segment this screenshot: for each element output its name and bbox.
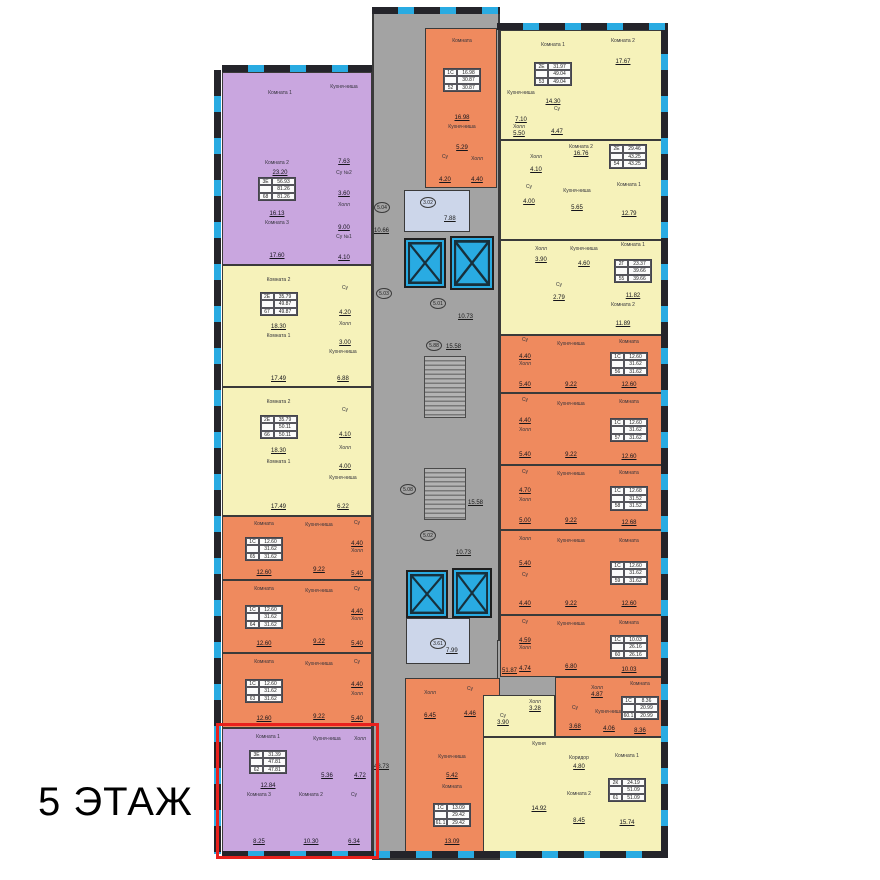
- room-name: Кухня-ниша: [557, 472, 584, 478]
- room-name: Комната 1: [268, 91, 292, 97]
- room-area: 4.60: [578, 261, 590, 267]
- empty-cell: [611, 426, 624, 434]
- apt-living-area: 12.60: [624, 353, 647, 361]
- apt-type: 2К: [609, 779, 622, 787]
- apartment-54[interactable]: 2Е29.4643.255443.25 Комната 216.76 Холл4…: [500, 140, 662, 240]
- apartment-61[interactable]: Кухня14.92 Коридор4.80 Комната 28.45 Ком…: [483, 737, 662, 852]
- apt-number: 65: [246, 553, 259, 561]
- room-name: Холл: [339, 322, 351, 328]
- apt-number: 53: [535, 78, 548, 86]
- room: Су3.90: [490, 714, 516, 726]
- room-name: Холл: [519, 362, 531, 368]
- apartment-59[interactable]: Холл5.40 Су4.40 Кухня-ниша9.22 Комната 1…: [500, 530, 662, 615]
- room-name: Холл: [424, 691, 436, 697]
- empty-cell: [611, 569, 624, 577]
- apt-number: 66: [261, 431, 274, 439]
- room-area: 12.60: [621, 382, 636, 388]
- room-area: 6.45: [424, 713, 436, 719]
- room: Кухня-ниша9.22: [547, 342, 595, 388]
- room: Комната 1С12.6031.625731.62 12.60: [599, 400, 659, 460]
- vestibule-upper: [404, 190, 470, 232]
- room-name: Комната 2: [267, 400, 291, 406]
- room-name: Комната: [254, 522, 274, 528]
- room-area: 3.90: [535, 257, 547, 263]
- room: Су3.68: [562, 706, 588, 730]
- apartment-56[interactable]: Су4.40 Холл5.40 Кухня-ниша9.22 Комната 1…: [500, 335, 662, 393]
- room-name: Комната: [254, 587, 274, 593]
- room-area: 5.42: [446, 773, 458, 779]
- room: Холл5.40: [511, 362, 539, 388]
- room-area: 9.22: [313, 639, 325, 645]
- room-area: 3.90: [497, 720, 509, 726]
- empty-cell: [622, 704, 635, 712]
- room-area: 18.30: [271, 324, 286, 330]
- apartment-55[interactable]: Холл3.90 Кухня-ниша4.60 Комната 1 2Г23.3…: [500, 240, 662, 335]
- apt-number: 59: [611, 577, 624, 585]
- room: Комната 112.79: [601, 183, 657, 217]
- room-name: Холл: [535, 247, 547, 253]
- room-name: Су: [467, 687, 473, 693]
- empty-cell: [246, 687, 259, 695]
- corridor-area-label: 7.88: [444, 216, 456, 222]
- floor-plan-page: { "floor_label": "5 ЭТАЖ", "colors": { "…: [0, 0, 880, 880]
- room-area: 11.82: [626, 293, 641, 299]
- room: Комната 1С12.6031.626531.62 12.60: [235, 522, 293, 576]
- room-name: Су: [342, 286, 348, 292]
- apartment-63[interactable]: Комната 1С12.6031.626331.62 12.60 Кухня-…: [222, 653, 372, 728]
- room-area: 4.70: [519, 488, 531, 494]
- apt-total-area: 26.16: [624, 651, 647, 659]
- room-name: Комната 1: [267, 460, 291, 466]
- apt-total-area: 29.42: [447, 811, 470, 819]
- room-area: 2.79: [553, 295, 565, 301]
- room-name: Кухня-ниша: [595, 710, 622, 716]
- apt-total-area: 43.25: [623, 160, 646, 168]
- apt-living-area: 23.37: [628, 260, 651, 268]
- room-name: Кухня: [532, 742, 545, 748]
- room: Холл6.45: [414, 691, 446, 719]
- room: Комната 1С16.9830.875230.87 16.98: [434, 39, 490, 121]
- apt-total-area: 29.42: [447, 819, 470, 827]
- room-area: 14.30: [545, 99, 560, 105]
- apartment-68[interactable]: Комната 123.20 Кухня-ниша7.63 Су №23.60 …: [222, 72, 372, 265]
- room-area: 15.74: [619, 820, 634, 826]
- stairs-icon: [424, 468, 466, 520]
- apt-living-area: 10.03: [624, 636, 647, 644]
- apt-number: 57: [611, 434, 624, 442]
- apartment-info-table: 1С8.3620.9960.120.99: [621, 696, 659, 721]
- apt-living-area: 12.60: [259, 606, 282, 614]
- room-area: 9.22: [565, 452, 577, 458]
- apt-type: 2Е: [535, 63, 548, 71]
- room-area: 4.00: [339, 464, 351, 470]
- apartment-info-table: 2Е31.9749.045349.04: [534, 62, 572, 87]
- room: Холл3.90: [527, 247, 555, 263]
- room-area: 12.60: [256, 641, 271, 647]
- apt-living-area: 12.60: [259, 538, 282, 546]
- apartment-52[interactable]: Комната 1С16.9830.875230.87 16.98 Кухня-…: [425, 28, 497, 188]
- apartment-info-table: 1С12.6831.525831.52: [610, 486, 648, 511]
- room-name: Су: [522, 470, 528, 476]
- apt-total-area: 31.62: [624, 360, 647, 368]
- room: Холл3.28: [520, 700, 550, 712]
- room-area: 4.06: [603, 726, 615, 732]
- room-area: 5.40: [351, 716, 363, 722]
- room: Су №14.10: [323, 235, 365, 261]
- corridor-area-label: 10.73: [458, 314, 473, 320]
- apt-total-area: 31.62: [624, 368, 647, 376]
- apt-type: 1С: [434, 804, 447, 812]
- room-name: Су: [522, 338, 528, 344]
- empty-cell: [246, 613, 259, 621]
- exterior-wall-windows: [372, 7, 500, 14]
- room-name: Холл: [351, 549, 363, 555]
- room-name: Кухня-ниша: [305, 662, 332, 668]
- room-area: 18.30: [271, 448, 286, 454]
- room-area: 6.22: [337, 504, 349, 510]
- apt-type: 2Е: [610, 145, 623, 153]
- room-area: 9.22: [313, 567, 325, 573]
- empty-cell: [259, 185, 272, 193]
- room-name: Су: [522, 398, 528, 404]
- room: Комната 1С12.6031.626331.62 12.60: [235, 660, 293, 722]
- room-name: Комната 2: [265, 161, 289, 167]
- room-area: 12.79: [621, 211, 636, 217]
- room: Холл4.87: [582, 686, 612, 698]
- room: Комната 2 2Е35.7949.876749.87 18.30: [241, 278, 316, 330]
- apartment-60-1[interactable]: Холл4.87 Су3.68 Кухня-ниша4.06 Комната 1…: [555, 677, 662, 737]
- room-area: 3.00: [339, 340, 351, 346]
- apt-number: 54: [610, 160, 623, 168]
- apt-total-area: 51.09: [622, 794, 645, 802]
- apartment-60[interactable]: Су4.59 Холл4.74 Кухня-ниша6.80 Комната 1…: [500, 615, 662, 677]
- apartment-info-table: 1С13.0929.4261.129.42: [433, 803, 471, 828]
- apt-total-area: 31.62: [259, 545, 282, 553]
- room: Холл4.40: [462, 157, 492, 183]
- room: Кухня-ниша7.63: [321, 85, 367, 165]
- room-name: Холл: [339, 446, 351, 452]
- room-area: 17.49: [271, 504, 286, 510]
- apt-living-area: 29.46: [623, 145, 646, 153]
- room: Су4.40: [511, 398, 539, 424]
- apartment-info-table: 2Е35.7950.116650.11: [260, 415, 298, 440]
- apartment-info-table: 2Е35.7949.876749.87: [260, 292, 298, 317]
- apt-total-area: 30.87: [457, 84, 480, 92]
- apt-number: 61: [609, 794, 622, 802]
- room: Су4.20: [325, 286, 365, 316]
- room-name: Холл: [519, 498, 531, 504]
- apt-living-area: 12.60: [624, 419, 647, 427]
- room-name: Холл: [530, 155, 542, 161]
- room-name: Комната 2: [267, 278, 291, 284]
- room-name: Комната 2: [611, 303, 635, 309]
- area-marker: 5.88: [426, 340, 442, 351]
- room-name: Су: [354, 521, 360, 527]
- room: Комната 317.60: [241, 221, 313, 259]
- room-name: Су: [354, 587, 360, 593]
- apt-total-area: 49.04: [548, 70, 571, 78]
- area-marker: 5.03: [376, 288, 392, 299]
- room: Комната 2 3Е56.9381.266881.26 16.13: [241, 161, 313, 217]
- apt-total-area: 31.52: [624, 502, 647, 510]
- apt-type: 1С: [246, 538, 259, 546]
- room: Кухня-ниша5.65: [553, 189, 601, 211]
- room-name: Кухня-ниша: [557, 539, 584, 545]
- apt-total-area: 20.99: [635, 712, 658, 720]
- apartment-info-table: 1С12.6031.625731.62: [610, 418, 648, 443]
- room: Комната 1С12.6031.625631.62 12.60: [599, 340, 659, 388]
- apt-total-area: 31.62: [624, 569, 647, 577]
- apt-living-area: 31.97: [548, 63, 571, 71]
- room-name: Комната: [619, 340, 639, 346]
- apartment-65[interactable]: Комната 1С12.6031.626531.62 12.60 Кухня-…: [222, 516, 372, 580]
- apt-total-area: 49.87: [274, 308, 297, 316]
- room-name: Кухня-ниша: [563, 189, 590, 195]
- room-name: Холл: [471, 157, 483, 163]
- room-name: Су: [556, 283, 562, 289]
- apt-total-area: 31.62: [624, 434, 647, 442]
- apt-living-area: 12.60: [259, 680, 282, 688]
- room: Су4.47: [543, 107, 571, 135]
- empty-cell: [610, 153, 623, 161]
- apt-type: 1С: [246, 680, 259, 688]
- apt-total-area: 43.25: [623, 153, 646, 161]
- apt-total-area: 31.62: [259, 621, 282, 629]
- room-area: 17.60: [269, 253, 284, 259]
- apt-total-area: 20.99: [635, 704, 658, 712]
- room: Холл9.00: [323, 203, 365, 231]
- room-name: Су: [522, 573, 528, 579]
- room: Кухня-ниша7.10: [503, 91, 539, 123]
- room-area: 9.22: [565, 518, 577, 524]
- room-name: Комната 1: [541, 43, 565, 49]
- room-area: 4.40: [519, 354, 531, 360]
- apartment-info-table: 1С12.6031.626531.62: [245, 537, 283, 562]
- corridor-area-label: 15.58: [446, 344, 461, 350]
- room: Холл5.50: [505, 125, 533, 137]
- room-name: Кухня-ниша: [557, 342, 584, 348]
- room-area: 6.88: [337, 376, 349, 382]
- apartment-61[interactable]: Холл3.28 Су3.90: [483, 695, 555, 737]
- room-area: 4.00: [523, 199, 535, 205]
- apt-total-area: 49.87: [274, 300, 297, 308]
- corridor-area-label: 51.87: [502, 668, 517, 674]
- room-name: Кухня-ниша: [305, 589, 332, 595]
- room: Комната 1С8.3620.9960.120.99 8.36: [620, 682, 660, 734]
- room-name: Су: [554, 107, 560, 113]
- room-name: Холл: [519, 428, 531, 434]
- apartment-57[interactable]: Су4.40 Холл5.40 Кухня-ниша9.22 Комната 1…: [500, 393, 662, 465]
- room: Кухня-ниша6.88: [319, 350, 367, 382]
- room-name: Комната: [452, 39, 472, 45]
- room-area: 5.00: [519, 518, 531, 524]
- room: Су4.70: [511, 470, 539, 494]
- area-marker: 3.61: [430, 638, 446, 649]
- room: Су №23.60: [323, 171, 365, 197]
- room: Су4.10: [325, 408, 365, 438]
- apartment-info-table: 2К24.1951.096151.09: [608, 778, 646, 803]
- apt-number: 68: [259, 193, 272, 201]
- apartment-67[interactable]: Комната 2 2Е35.7949.876749.87 18.30 Су4.…: [222, 265, 372, 387]
- room-area: 12.60: [256, 570, 271, 576]
- room: Кухня-ниша9.22: [547, 402, 595, 458]
- room-name: Кухня-ниша: [570, 247, 597, 253]
- apartment-53[interactable]: Комната 1 2Е31.9749.045349.04 14.30 Комн…: [500, 30, 662, 140]
- room-area: 6.80: [565, 664, 577, 670]
- room: Кухня-ниша9.22: [547, 472, 595, 524]
- apt-living-area: 12.60: [624, 562, 647, 570]
- apt-number: 52: [444, 84, 457, 92]
- room: Су4.00: [515, 185, 543, 205]
- room-name: Комната: [442, 785, 462, 791]
- room-area: 5.40: [519, 561, 531, 567]
- room: Холл5.40: [343, 692, 371, 722]
- room: Комната 217.67: [587, 39, 659, 65]
- empty-cell: [609, 786, 622, 794]
- room: Кухня-ниша9.22: [297, 523, 341, 573]
- room-area: 14.92: [531, 806, 546, 812]
- apt-living-area: 35.79: [274, 416, 297, 424]
- apt-living-area: 56.93: [272, 178, 295, 186]
- room: Су2.79: [545, 283, 573, 301]
- room-name: Комната: [619, 471, 639, 477]
- room: Су4.59: [511, 620, 539, 644]
- room-area: 9.22: [565, 601, 577, 607]
- elevator-icon: [450, 236, 494, 290]
- room-name: Комната 1: [621, 243, 645, 249]
- room: Комната 1С12.6831.525831.52 12.68: [599, 471, 659, 526]
- room-name: Кухня-ниша: [557, 402, 584, 408]
- room-area: 4.40: [351, 609, 363, 615]
- area-marker: 5.01: [430, 298, 446, 309]
- room-area: 16.98: [454, 115, 469, 121]
- room-name: Кухня-ниша: [329, 476, 356, 482]
- room: Холл5.40: [343, 617, 371, 647]
- room-name: Су №1: [336, 235, 352, 241]
- room-name: Су: [522, 620, 528, 626]
- room: Су4.20: [430, 155, 460, 183]
- room: Холл5.40: [511, 537, 539, 567]
- room-name: Комната: [619, 400, 639, 406]
- room: Комната 1 2Г23.3739.665539.66 11.82: [607, 243, 659, 299]
- room: Холл4.00: [323, 446, 367, 470]
- room-area: 3.68: [569, 724, 581, 730]
- apartment-66[interactable]: Комната 2 2Е35.7950.116650.11 18.30 Су4.…: [222, 387, 372, 516]
- apt-type: 1С: [611, 353, 624, 361]
- room: Комната 1С12.6031.625931.62 12.60: [599, 539, 659, 607]
- room-name: Кухня-ниша: [305, 523, 332, 529]
- room-name: Кухня-ниша: [507, 91, 534, 97]
- room: Комната 1С10.0326.166026.16 10.03: [599, 621, 659, 673]
- room-area: 12.68: [621, 520, 636, 526]
- room-area: 3.60: [338, 191, 350, 197]
- apt-type: 1С: [246, 606, 259, 614]
- apt-living-area: 12.68: [624, 487, 647, 495]
- room: Кухня-ниша9.22: [547, 539, 595, 607]
- corridor-area-label: 15.58: [468, 500, 483, 506]
- room-area: 8.36: [634, 728, 646, 734]
- apartment-64[interactable]: Комната 1С12.6031.626431.62 12.60 Кухня-…: [222, 580, 372, 653]
- empty-cell: [611, 360, 624, 368]
- elevator-icon: [452, 568, 492, 618]
- apartment-info-table: 3Е56.9381.266881.26: [258, 177, 296, 202]
- room-area: 4.10: [530, 167, 542, 173]
- room-name: Су: [354, 660, 360, 666]
- room-area: 9.22: [313, 714, 325, 720]
- room: Холл4.10: [521, 155, 551, 173]
- empty-cell: [434, 811, 447, 819]
- room: Холл5.40: [343, 549, 371, 577]
- apt-type: 3Е: [259, 178, 272, 186]
- apartment-info-table: 1С12.6031.626431.62: [245, 605, 283, 630]
- area-marker: 5.04: [374, 202, 390, 213]
- elevator-icon: [404, 238, 446, 288]
- apt-total-area: 30.87: [457, 76, 480, 84]
- corridor-area-label: 10.66: [374, 228, 389, 234]
- room-area: 4.87: [591, 692, 603, 698]
- room: Кухня-ниша9.22: [297, 589, 341, 645]
- room-name: Су №2: [336, 171, 352, 177]
- room-area: 5.40: [519, 452, 531, 458]
- empty-cell: [261, 423, 274, 431]
- room: Кухня-ниша6.80: [547, 622, 595, 670]
- room-name: Комната: [619, 621, 639, 627]
- stairs-icon: [424, 356, 466, 418]
- room: Холл5.40: [511, 428, 539, 458]
- room-name: Комната 1: [267, 334, 291, 340]
- room: Су4.40: [343, 587, 371, 615]
- room-area: 10.03: [621, 667, 636, 673]
- room-area: 4.74: [519, 666, 531, 672]
- room: Холл5.00: [511, 498, 539, 524]
- apartment-info-table: 2Е29.4643.255443.25: [609, 144, 647, 169]
- room-name: Кухня-ниша: [438, 755, 465, 761]
- room-name: Су: [526, 185, 532, 191]
- room-area: 3.28: [529, 706, 541, 712]
- room-area: 4.80: [573, 764, 585, 770]
- room-area: 16.13: [269, 211, 284, 217]
- area-marker: 5.08: [400, 484, 416, 495]
- exterior-wall-windows: [661, 28, 668, 854]
- room-area: 5.29: [456, 145, 468, 151]
- room: Комната 2 2Е35.7950.116650.11 18.30: [241, 400, 316, 454]
- apartment-58[interactable]: Су4.70 Холл5.00 Кухня-ниша9.22 Комната 1…: [500, 465, 662, 530]
- room: Комната 216.76: [557, 145, 605, 157]
- apt-number: 60: [611, 651, 624, 659]
- apt-total-area: 50.11: [274, 423, 297, 431]
- room-area: 4.20: [439, 177, 451, 183]
- empty-cell: [611, 495, 624, 503]
- empty-cell: [444, 76, 457, 84]
- apt-number: 60.1: [622, 712, 635, 720]
- room-area: 4.40: [351, 682, 363, 688]
- apt-type: 1С: [622, 697, 635, 705]
- room-area: 4.10: [338, 255, 350, 261]
- apt-number: 64: [246, 621, 259, 629]
- apt-total-area: 31.52: [624, 495, 647, 503]
- corridor-area-label: 10.73: [456, 550, 471, 556]
- apartment-info-table: 2Г23.3739.665539.66: [614, 259, 652, 284]
- room: Кухня-ниша4.60: [561, 247, 607, 267]
- apt-total-area: 39.66: [628, 267, 651, 275]
- apartment-info-table: 1С16.9830.875230.87: [443, 68, 481, 93]
- room: Комната 117.49: [241, 460, 316, 510]
- room: Кухня-ниша6.22: [319, 476, 367, 510]
- room-area: 13.09: [444, 839, 459, 845]
- room: Коридор4.80: [558, 756, 600, 770]
- apt-total-area: 81.26: [272, 185, 295, 193]
- apt-number: 55: [615, 275, 628, 283]
